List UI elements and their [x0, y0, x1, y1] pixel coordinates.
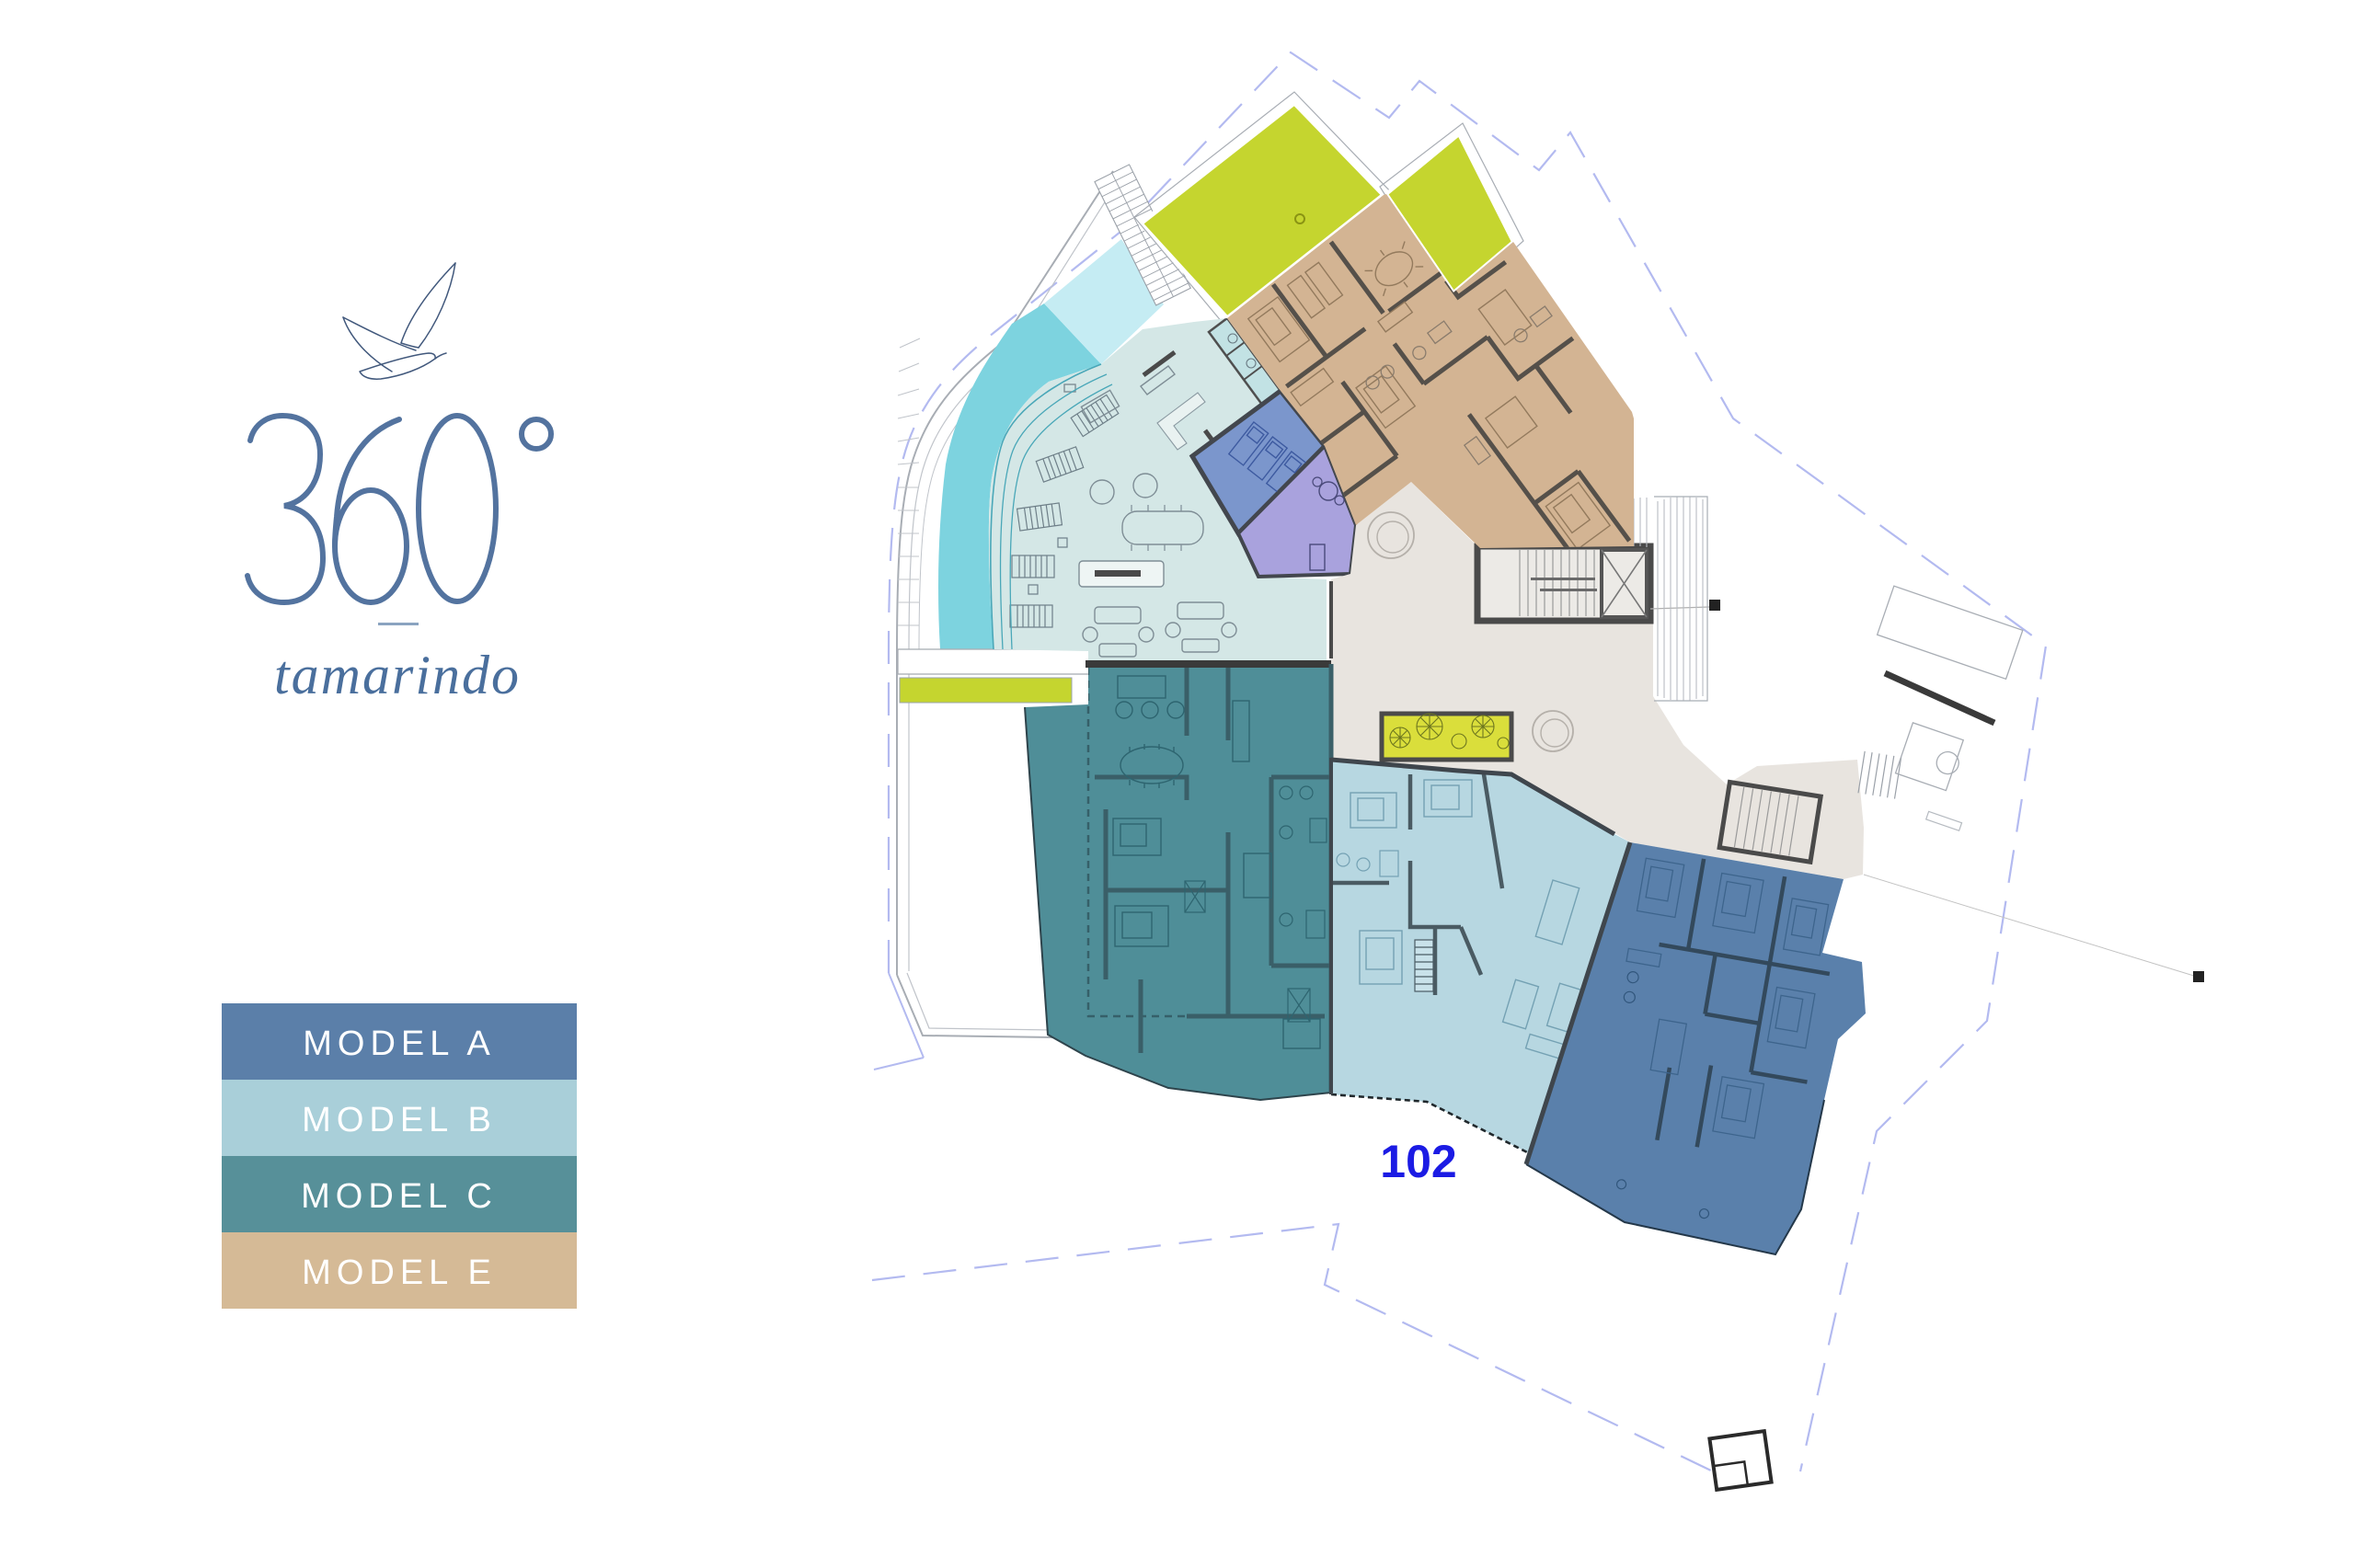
svg-text:MODEL E: MODEL E: [302, 1253, 497, 1292]
svg-text:102: 102: [1380, 1136, 1456, 1187]
svg-text:MODEL A: MODEL A: [303, 1024, 496, 1063]
svg-text:tamarindo: tamarindo: [274, 645, 521, 705]
svg-text:MODEL C: MODEL C: [301, 1177, 498, 1216]
svg-text:MODEL B: MODEL B: [302, 1101, 497, 1139]
